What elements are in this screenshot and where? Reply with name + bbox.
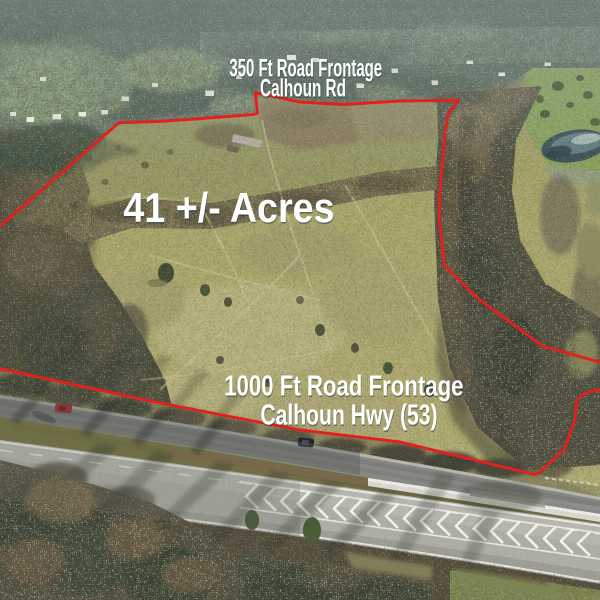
svg-text:41 +/- Acres: 41 +/- Acres xyxy=(123,185,334,231)
svg-text:Calhoun Hwy (53): Calhoun Hwy (53) xyxy=(260,400,437,432)
svg-text:Calhoun Rd: Calhoun Rd xyxy=(260,74,346,102)
svg-text:1000 Ft Road Frontage: 1000 Ft Road Frontage xyxy=(224,371,463,403)
